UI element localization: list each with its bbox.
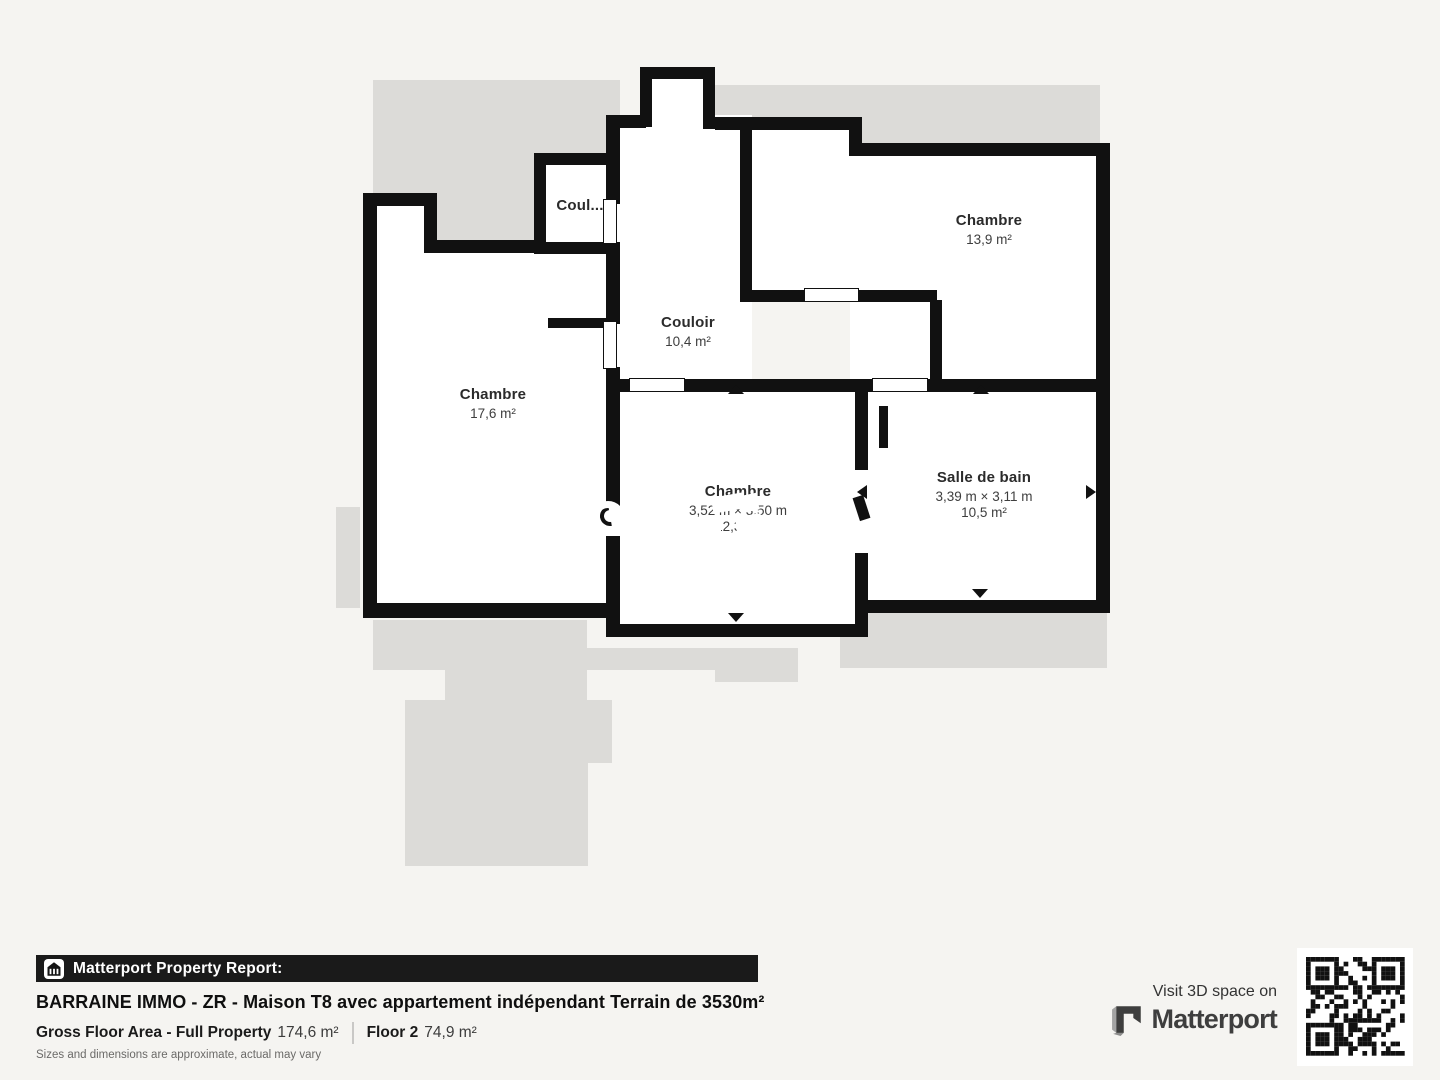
floor-silhouette-part: [587, 648, 715, 670]
room-fill: [608, 115, 752, 392]
wall: [1096, 143, 1110, 613]
wall: [606, 536, 620, 637]
wall: [715, 117, 862, 130]
wall: [606, 624, 868, 637]
wall: [363, 603, 620, 618]
floor-silhouette-part: [715, 648, 798, 682]
door-slab: [629, 378, 685, 392]
door-arrow-down-icon: [728, 613, 744, 622]
floor-silhouette-part: [840, 612, 1107, 668]
report-header-bar: Matterport Property Report:: [36, 955, 758, 982]
room-name: Chambre: [460, 386, 526, 403]
disclaimer-text: Sizes and dimensions are approximate, ac…: [36, 1049, 321, 1061]
wall: [548, 318, 608, 328]
door-slab: [603, 199, 617, 244]
visit-3d-label: Visit 3D space on: [1153, 983, 1277, 1001]
room-label-couloir: Couloir 10,4 m²: [661, 314, 715, 349]
wall: [534, 153, 546, 254]
divider: [352, 1022, 354, 1044]
wall: [849, 143, 1110, 156]
room-name: Salle de bain: [936, 469, 1033, 486]
wall: [606, 115, 620, 204]
room-label-chambre-left: Chambre 17,6 m²: [460, 386, 526, 421]
wall: [424, 240, 536, 253]
door-arrow-down-icon: [972, 589, 988, 598]
room-area: 10,5 m²: [936, 505, 1033, 520]
room-dimensions: 3,39 m × 3,11 m: [936, 489, 1033, 504]
wall: [855, 392, 868, 470]
room-name: Couloir: [661, 314, 715, 331]
wall: [363, 193, 377, 618]
wall: [606, 242, 620, 324]
door-arrow-up-icon: [973, 385, 989, 394]
door-arrow-up-icon: [728, 385, 744, 394]
report-header-label: Matterport Property Report:: [73, 960, 283, 978]
watermark-ring: [591, 501, 625, 535]
matterport-brand: Matterport: [1112, 1002, 1278, 1036]
floor-silhouette-part: [437, 193, 536, 240]
floor-silhouette-part: [336, 507, 360, 608]
matterport-logo-icon: [1112, 1002, 1144, 1036]
room-fill: [850, 143, 1110, 392]
floor-plan: Chambre 17,6 m² Coul... Couloir 10,4 m² …: [0, 0, 1440, 1080]
wall: [618, 115, 646, 128]
listing-title: BARRAINE IMMO - ZR - Maison T8 avec appa…: [36, 992, 765, 1013]
gross-floor-area-label: Gross Floor Area - Full Property: [36, 1024, 271, 1042]
room-fill: [363, 240, 620, 618]
area-summary: Gross Floor Area - Full Property 174,6 m…: [36, 1022, 477, 1044]
door-slab: [872, 378, 928, 392]
room-area: 10,4 m²: [661, 334, 715, 349]
room-name: Coul...: [556, 197, 603, 214]
wall: [740, 127, 752, 302]
door-arrow-left-icon: [857, 485, 867, 499]
room-area: 17,6 m²: [460, 406, 526, 421]
floor-silhouette-part: [588, 700, 612, 763]
watermark-blot: [708, 516, 721, 534]
gross-floor-area-value: 174,6 m²: [277, 1024, 338, 1042]
wall: [879, 406, 888, 448]
qr-pattern: [1306, 957, 1405, 1061]
property-report-icon: [44, 959, 64, 979]
room-label-couloir-small: Coul...: [556, 197, 603, 214]
floor-silhouette-part: [405, 700, 588, 866]
room-label-salle-de-bain: Salle de bain 3,39 m × 3,11 m 10,5 m²: [936, 469, 1033, 520]
qr-code: [1297, 948, 1413, 1066]
wall: [534, 242, 614, 254]
floor-label: Floor 2: [367, 1024, 419, 1042]
watermark-blot: [735, 513, 763, 535]
room-fill: [740, 117, 862, 302]
door-slab: [603, 321, 617, 369]
floor-area-value: 74,9 m²: [424, 1024, 477, 1042]
room-name: Chambre: [956, 212, 1022, 229]
matterport-wordmark: Matterport: [1152, 1004, 1278, 1035]
wall: [703, 67, 715, 129]
door-slab: [804, 288, 859, 302]
floor-silhouette-part: [373, 620, 587, 670]
floor-silhouette-part: [445, 670, 587, 700]
room-label-chambre-right: Chambre 13,9 m²: [956, 212, 1022, 247]
room-area: 13,9 m²: [956, 232, 1022, 247]
wall: [855, 600, 1110, 613]
door-arrow-right-icon: [1086, 485, 1096, 499]
